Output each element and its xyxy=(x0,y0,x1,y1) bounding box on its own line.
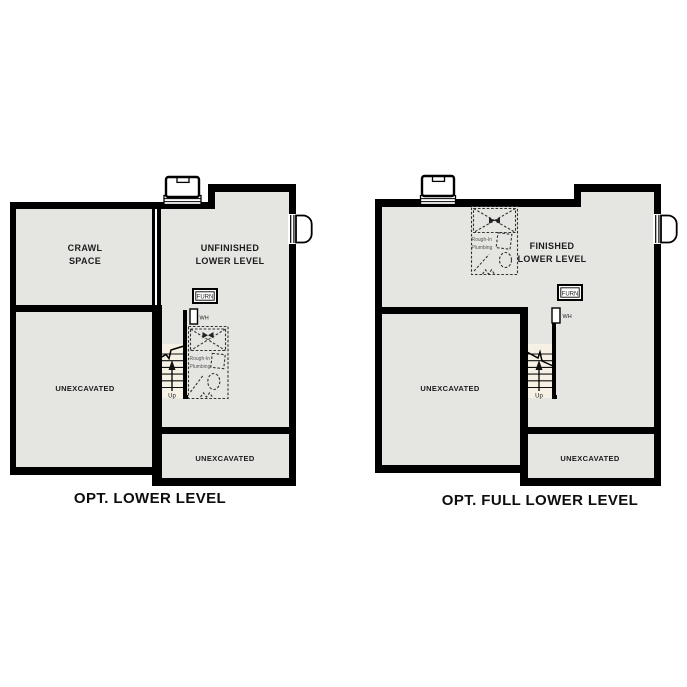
egress-window-icon xyxy=(653,214,677,244)
room-label-finished: FINISHED xyxy=(530,241,575,251)
floors xyxy=(382,192,654,478)
plan-caption: OPT. LOWER LEVEL xyxy=(74,490,226,507)
crawl-space-floor xyxy=(15,205,152,305)
floorplan-left: FURN WH Rough-In Plumbing CRAWL SPACE UN… xyxy=(0,170,343,513)
room-label-unfinished: LOWER LEVEL xyxy=(196,256,265,266)
room-label-unexcavated-bottom: UNEXCAVATED xyxy=(195,454,255,463)
plumbing-label: Rough-In xyxy=(190,356,211,362)
water-heater-label: WH xyxy=(200,316,209,322)
room-label-unexcavated-bottom: UNEXCAVATED xyxy=(560,454,620,463)
plumbing-label: Rough-In xyxy=(472,237,493,243)
plumbing-label: Plumbing xyxy=(190,364,211,370)
floorplan-right: FURN WH Rough-In Plumbing FINISHED LOWER… xyxy=(343,170,687,513)
room-label-unexcavated-left: UNEXCAVATED xyxy=(420,384,480,393)
room-label-crawl-space: SPACE xyxy=(69,256,101,266)
room-label-unfinished: UNFINISHED xyxy=(201,243,260,253)
room-label-unexcavated-left: UNEXCAVATED xyxy=(55,384,115,393)
fireplace-icon xyxy=(421,176,456,205)
stairs-up-label: Up xyxy=(535,394,543,400)
stairs xyxy=(527,344,553,398)
floorplan-sheet: { "figure": { "type": "architectural-low… xyxy=(0,0,687,687)
plumbing-label: Plumbing xyxy=(472,245,493,251)
furnace-label: FURN xyxy=(562,291,579,297)
stairs-up-label: Up xyxy=(168,394,176,400)
furnace-label: FURN xyxy=(197,295,214,301)
furnace-box: FURN xyxy=(193,289,217,303)
room-label-crawl-space: CRAWL xyxy=(68,243,103,253)
water-heater-label: WH xyxy=(563,314,572,320)
egress-window-icon xyxy=(288,214,312,244)
furnace-box: FURN xyxy=(558,285,582,300)
plan-caption: OPT. FULL LOWER LEVEL xyxy=(442,492,638,509)
fireplace-icon xyxy=(164,177,201,205)
room-label-finished: LOWER LEVEL xyxy=(518,254,587,264)
